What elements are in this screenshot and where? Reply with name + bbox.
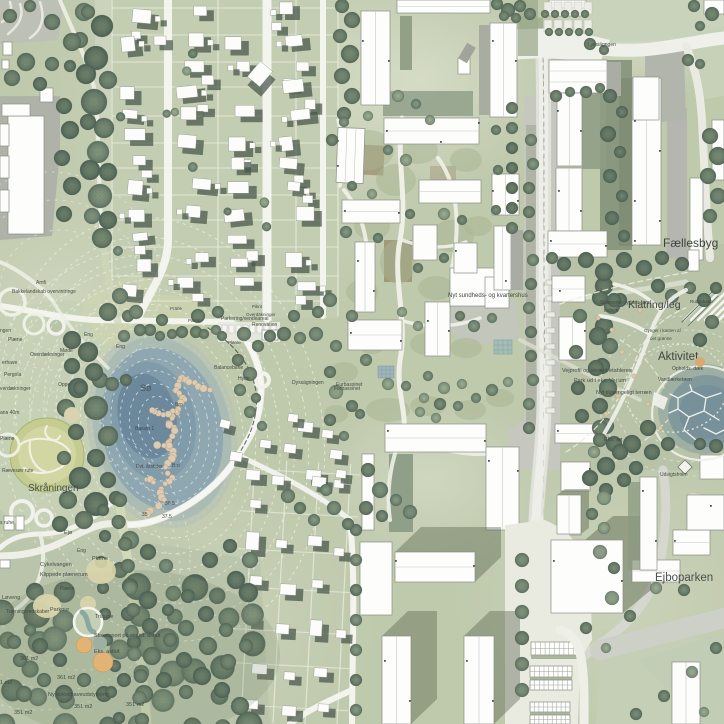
svg-text:Fællesbyg: Fællesbyg — [663, 236, 718, 250]
svg-text:det grønne: det grønne — [650, 336, 672, 341]
svg-text:Plæne: Plæne — [0, 436, 15, 442]
svg-text:Opholds. dæk: Opholds. dæk — [672, 366, 704, 372]
svg-text:Eng: Eng — [116, 344, 125, 350]
svg-text:Oppe: Oppe — [58, 382, 70, 388]
svg-text:Klippede plænerum: Klippede plænerum — [40, 572, 88, 578]
svg-text:Tribune: Tribune — [95, 614, 113, 620]
svg-text:37.5: 37.5 — [162, 514, 172, 520]
svg-text:Rutsjebane: Rutsjebane — [690, 299, 713, 304]
svg-text:Prärle: Prärle — [170, 306, 183, 311]
svg-text:Eng: Eng — [77, 548, 86, 554]
svg-text:Ejboparken: Ejboparken — [655, 572, 713, 584]
svg-text:Balancebane: Balancebane — [214, 365, 243, 371]
svg-text:Træningsredskaber: Træningsredskaber — [6, 609, 50, 615]
svg-text:Streetsport på eksist. asfalt: Streetsport på eksist. asfalt — [94, 632, 161, 639]
svg-text:Lyssiägngen: Lyssiägngen — [588, 42, 616, 48]
svg-text:s ruhe: s ruhe — [0, 520, 14, 526]
svg-text:Ejø: Ejø — [64, 530, 73, 536]
svg-text:Eng: Eng — [84, 332, 93, 338]
svg-text:36.5: 36.5 — [165, 501, 175, 507]
svg-text:Bro: Bro — [172, 463, 180, 469]
svg-text:Pergola: Pergola — [4, 372, 21, 378]
svg-text:Piknt: Piknt — [252, 304, 263, 309]
svg-text:1 m2: 1 m2 — [0, 680, 12, 686]
svg-text:Skæmmer ryddes først: Skæmmer ryddes først — [600, 300, 651, 306]
svg-text:Overdækninger: Overdækninger — [30, 352, 65, 358]
svg-text:indsyn: indsyn — [604, 308, 619, 314]
svg-text:Overdäkninger: Overdäkninger — [246, 312, 276, 317]
svg-text:Vejprofil og skrænt etableres: Vejprofil og skrænt etableres — [562, 368, 632, 374]
svg-text:Nyt tilgængeligt terræn: Nyt tilgængeligt terræn — [596, 390, 652, 396]
svg-text:Eks. asfalt: Eks. asfalt — [94, 649, 120, 655]
svg-text:Løveng: Løveng — [2, 595, 20, 601]
svg-text:Parkour: Parkour — [50, 607, 69, 613]
svg-text:Bassin 1: Bassin 1 — [135, 426, 154, 432]
svg-text:Dyssägningen: Dyssägningen — [292, 380, 324, 386]
svg-text:35: 35 — [142, 512, 148, 518]
svg-text:Plæne: Plæne — [60, 586, 75, 592]
svg-text:Plæne: Plæne — [92, 556, 108, 562]
svg-text:361 m2: 361 m2 — [57, 675, 75, 681]
svg-text:Evt. årstider: Evt. årstider — [136, 463, 163, 470]
svg-text:Rævesøv rute: Rævesøv rute — [2, 468, 34, 474]
svg-text:Eks. sø: Eks. sø — [604, 437, 623, 443]
svg-text:Pænle: Pænle — [188, 318, 202, 323]
svg-text:Gynger i kanten af: Gynger i kanten af — [644, 328, 682, 333]
svg-text:Ny kolonihaveudstykning: Ny kolonihaveudstykning — [48, 692, 109, 698]
svg-text:Nyt sundheds- og kvartershus: Nyt sundheds- og kvartershus — [448, 293, 528, 299]
svg-text:Cykelvangen: Cykelvangen — [40, 562, 72, 568]
svg-text:ngen: ngen — [0, 328, 11, 334]
svg-text:Plæne: Plæne — [8, 337, 23, 343]
svg-text:Forbassinet: Forbassinet — [334, 386, 361, 392]
svg-text:Renovation: Renovation — [252, 322, 278, 328]
svg-text:Sø: Sø — [140, 383, 152, 393]
svg-text:Aktivitet: Aktivitet — [658, 351, 699, 363]
svg-text:361 m2: 361 m2 — [20, 656, 38, 662]
svg-text:Bro: Bro — [175, 402, 183, 408]
svg-text:ana 40m: ana 40m — [0, 410, 19, 416]
svg-text:Hytte: Hytte — [238, 376, 250, 382]
svg-text:Skråningen: Skråningen — [28, 482, 79, 494]
svg-text:Bakkelandskab overvintringe: Bakkelandskab overvintringe — [12, 289, 76, 295]
svg-text:Plänte: Plänte — [228, 340, 241, 345]
svg-text:351 m2: 351 m2 — [14, 710, 32, 716]
svg-text:erhave: erhave — [2, 360, 18, 366]
svg-text:Amfi: Amfi — [36, 280, 46, 286]
svg-text:351 m2: 351 m2 — [126, 702, 144, 708]
svg-text:verdækninger: verdækninger — [0, 386, 31, 392]
svg-text:Vandlærketøen: Vandlærketøen — [658, 377, 692, 383]
svg-text:351 m2: 351 m2 — [74, 704, 92, 710]
svg-text:Park ud t eks. Vej um: Park ud t eks. Vej um — [574, 378, 626, 384]
svg-text:Udsigtsholm: Udsigtsholm — [660, 472, 688, 478]
